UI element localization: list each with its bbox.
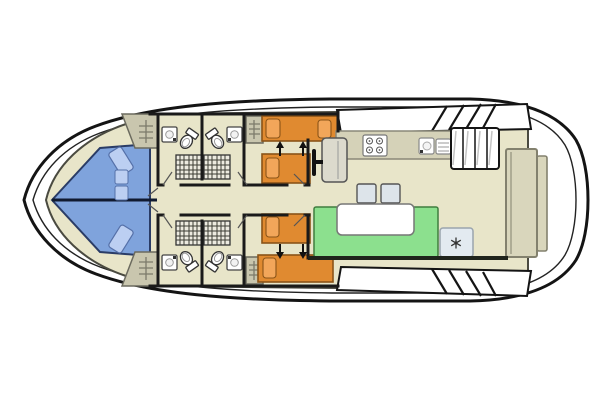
bed-pillow bbox=[266, 158, 279, 178]
steering-column bbox=[316, 160, 323, 164]
stove-icon bbox=[363, 135, 387, 156]
washbasin-icon bbox=[227, 255, 242, 270]
salon-table bbox=[337, 204, 414, 235]
stool bbox=[357, 184, 376, 203]
washbasin-icon bbox=[162, 255, 177, 270]
floor-plan-canvas bbox=[0, 0, 600, 400]
washbasin-icon bbox=[227, 127, 242, 142]
shower-tray-bottom-left bbox=[176, 221, 202, 245]
bed-pillow bbox=[266, 119, 280, 138]
bed-pillow bbox=[266, 217, 279, 237]
shower-tray-top-left bbox=[176, 155, 202, 179]
v-berth-cushion-2 bbox=[115, 186, 128, 200]
helm-seat bbox=[322, 138, 347, 182]
stern-door-panel-rear bbox=[537, 156, 547, 251]
bed-pillow bbox=[263, 258, 276, 278]
shower-tray-top-right bbox=[204, 155, 230, 179]
single-bed bbox=[262, 154, 310, 183]
shower-tray-bottom-right bbox=[204, 221, 230, 245]
wardrobe-cabin-top bbox=[246, 116, 263, 143]
stool bbox=[381, 184, 400, 203]
steering-wheel-icon bbox=[312, 149, 316, 176]
companionway-steps-icon bbox=[451, 128, 499, 169]
boat-floor-plan bbox=[0, 0, 600, 400]
single-bed bbox=[262, 214, 310, 243]
bed-pillow bbox=[318, 120, 331, 138]
v-berth-cushion-1 bbox=[115, 170, 128, 184]
washbasin-icon bbox=[162, 127, 177, 142]
fridge bbox=[440, 228, 473, 257]
